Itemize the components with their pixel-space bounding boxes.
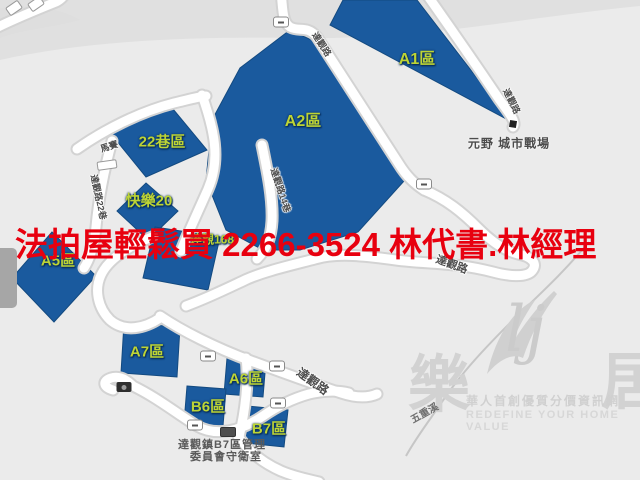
map-canvas: 樂 居 lj 華人首創優質分價資訊網 REDEFINE YOUR HOME VA…	[0, 0, 640, 480]
bus-stop-icon	[273, 17, 289, 28]
bus-stop-icon	[200, 351, 216, 362]
watermark-tagline-en: REDEFINE YOUR HOME VALUE	[466, 409, 640, 433]
region-label-happy20: 快樂20	[126, 190, 173, 211]
watermark-tagline-zh: 華人首創優質分價資訊網	[466, 392, 620, 409]
shelter-icon	[220, 427, 236, 437]
poi-label-guardhouse-line2: 委員會守衛室	[190, 448, 262, 464]
region-label-b6: B6區	[191, 396, 225, 417]
region-label-a6: A6區	[229, 368, 263, 389]
region-label-a2: A2區	[285, 107, 321, 131]
bus-stop-icon	[187, 420, 203, 431]
auction-ad-banner: 法拍屋輕鬆買 2266-3524 林代書.林經理	[15, 218, 596, 266]
watermark-lj-script: lj	[505, 298, 545, 362]
region-label-lane22: 22巷區	[139, 131, 186, 152]
bus-stop-icon	[270, 398, 286, 409]
poi-label-yuanye-battlefield: 元野 城市戰場	[468, 135, 550, 152]
region-label-a1: A1區	[399, 45, 435, 69]
region-a2	[206, 30, 404, 250]
bus-stop-icon	[416, 179, 432, 190]
region-label-a7: A7區	[130, 341, 164, 362]
camera-icon	[117, 382, 132, 392]
poi-marker-icon	[509, 120, 517, 128]
bus-stop-icon	[269, 361, 285, 372]
